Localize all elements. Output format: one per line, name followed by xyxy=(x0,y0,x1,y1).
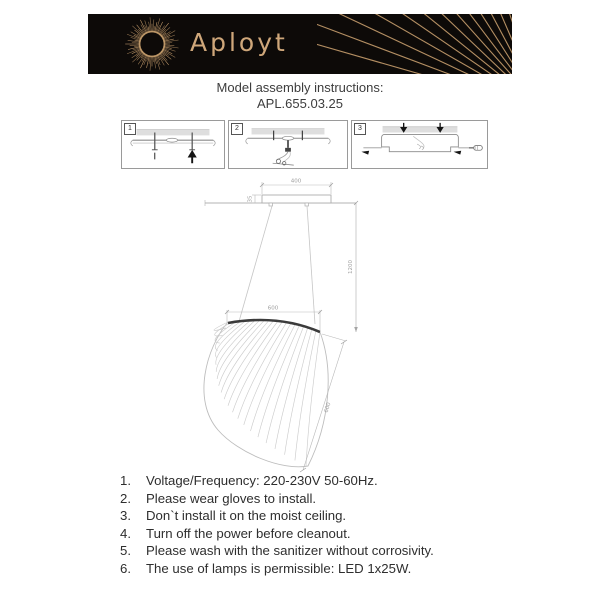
item-number: 1. xyxy=(120,472,146,490)
assembly-step-3: 3 xyxy=(351,120,488,169)
instruction-item: 4. Turn off the power before cleanout. xyxy=(120,525,500,543)
instruction-item: 6. The use of lamps is permissible: LED … xyxy=(120,560,500,578)
dim-canopy-width: 400 xyxy=(291,179,302,185)
suspension-wire-right xyxy=(307,206,315,324)
assembly-step-1: 1 xyxy=(121,120,225,169)
shade-outline xyxy=(204,322,328,467)
item-text: Don`t install it on the moist ceiling. xyxy=(146,507,500,525)
item-text: Turn off the power before cleanout. xyxy=(146,525,500,543)
item-text: The use of lamps is permissible: LED 1x2… xyxy=(146,560,500,578)
item-text: Please wear gloves to install. xyxy=(146,490,500,508)
model-number: APL.655.03.25 xyxy=(0,96,600,112)
step-1-diagram xyxy=(122,121,224,168)
step-number-badge: 1 xyxy=(124,123,136,135)
dim-suspension-height: 1200 xyxy=(348,260,354,274)
instruction-item: 3. Don`t install it on the moist ceiling… xyxy=(120,507,500,525)
dim-shade-width: 600 xyxy=(268,306,279,312)
instruction-item: 1. Voltage/Frequency: 220-230V 50-60Hz. xyxy=(120,472,500,490)
instruction-item: 5. Please wash with the sanitizer withou… xyxy=(120,542,500,560)
step-3-diagram xyxy=(352,121,487,168)
step-number-badge: 2 xyxy=(231,123,243,135)
dim-canopy-height: 35 xyxy=(248,195,254,202)
brand-logo-text: Aployt xyxy=(190,14,288,74)
canopy xyxy=(262,195,331,203)
item-number: 5. xyxy=(120,542,146,560)
page-title: Model assembly instructions: xyxy=(0,80,600,96)
item-text: Voltage/Frequency: 220-230V 50-60Hz. xyxy=(146,472,500,490)
title-block: Model assembly instructions: APL.655.03.… xyxy=(0,80,600,112)
decorative-rays-icon xyxy=(317,14,512,74)
brand-banner: Aployt xyxy=(88,14,512,74)
item-number: 3. xyxy=(120,507,146,525)
sunburst-logo-icon xyxy=(122,14,182,74)
step-number-badge: 3 xyxy=(354,123,366,135)
step-2-diagram xyxy=(229,121,347,168)
instruction-item: 2. Please wear gloves to install. xyxy=(120,490,500,508)
lamp-technical-drawing: 400 35 1200 600 600 xyxy=(0,170,600,480)
instructions-list: 1. Voltage/Frequency: 220-230V 50-60Hz. … xyxy=(120,472,500,578)
item-number: 2. xyxy=(120,490,146,508)
item-number: 6. xyxy=(120,560,146,578)
item-number: 4. xyxy=(120,525,146,543)
item-text: Please wash with the sanitizer without c… xyxy=(146,542,500,560)
assembly-step-2: 2 xyxy=(228,120,348,169)
